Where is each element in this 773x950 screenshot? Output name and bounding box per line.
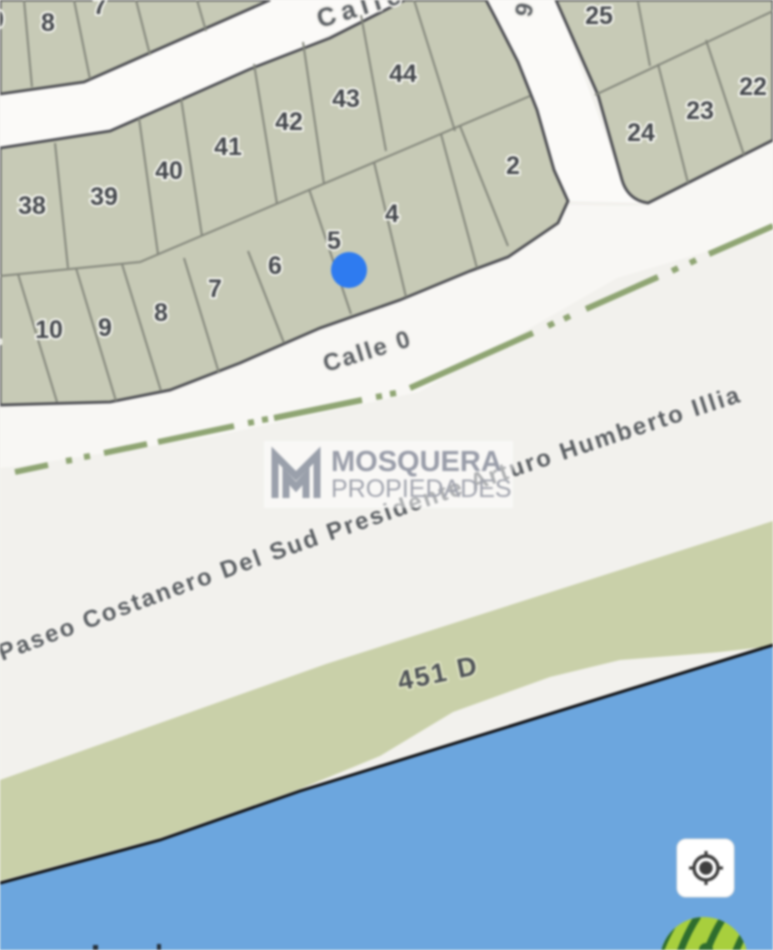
svg-text:40: 40 [155,157,183,185]
svg-text:4: 4 [385,200,399,228]
svg-text:23: 23 [686,97,714,125]
svg-text:5: 5 [327,227,341,255]
svg-text:7: 7 [208,275,222,303]
svg-text:10: 10 [35,316,63,344]
svg-text:8: 8 [154,299,168,327]
svg-text:9: 9 [0,6,4,34]
svg-text:6: 6 [268,252,282,280]
svg-text:1: 1 [0,321,1,349]
svg-text:PROPIEDADES: PROPIEDADES [331,475,512,503]
svg-text:25: 25 [585,2,613,30]
svg-text:MOSQUERA: MOSQUERA [331,446,502,478]
svg-text:43: 43 [332,85,360,113]
svg-text:8: 8 [41,9,55,37]
svg-text:24: 24 [627,119,655,147]
svg-text:7: 7 [93,0,107,20]
svg-text:2: 2 [506,152,520,180]
svg-text:38: 38 [18,192,46,220]
svg-text:41: 41 [214,133,242,161]
svg-text:42: 42 [275,108,303,136]
svg-text:44: 44 [389,60,417,88]
svg-text:39: 39 [90,183,118,211]
svg-text:9: 9 [98,314,112,342]
svg-text:22: 22 [739,73,767,101]
